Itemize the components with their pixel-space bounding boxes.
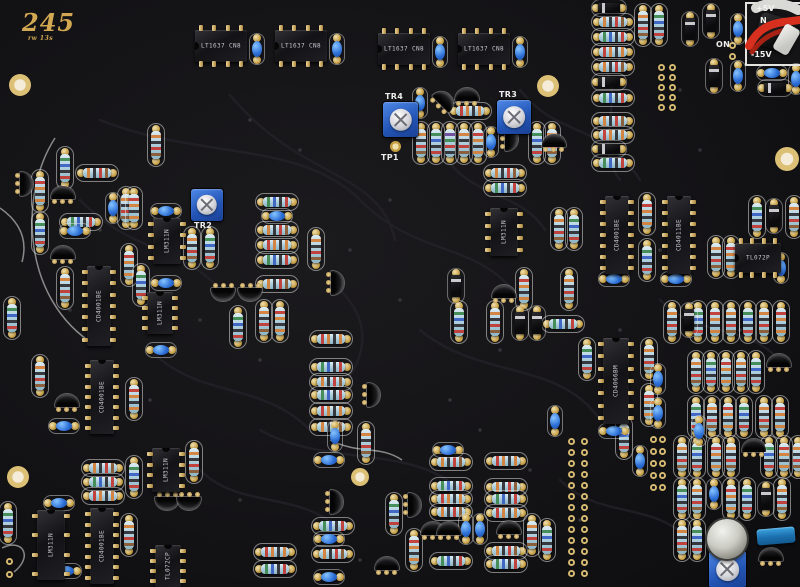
solder-pad [568,460,575,467]
resistor [674,478,690,520]
ic-pin [292,25,296,31]
resistor [739,478,755,520]
ic-marking: TL072P [746,255,770,262]
ic-pin [409,64,413,70]
solder-pad [658,94,665,101]
ceramic-capacitor [433,443,463,457]
resistor [32,355,48,397]
solder-pad [581,449,588,456]
transistor-to92 [454,86,480,106]
mounting-hole [9,74,31,96]
ceramic-capacitor [146,343,176,357]
ceramic-capacitor [692,416,706,446]
ic-pin [239,61,243,67]
ic-pin [517,248,523,252]
ic-pin [762,238,766,244]
ceramic-capacitor [314,453,344,467]
resistor [774,478,790,520]
ic-pin [147,473,153,477]
transistor-to92 [741,437,767,457]
ceramic-capacitor [633,446,647,476]
solder-pad [568,471,575,478]
transistor-to92 [362,382,382,408]
ic-pin [628,222,634,226]
ic-pin [32,514,38,518]
solder-pad [581,471,588,478]
resistor [126,187,142,229]
ic-pin [598,367,604,371]
ic-pin [110,270,116,274]
ic-pin [113,576,119,580]
test-point-pad [390,141,401,152]
ceramic-capacitor [314,570,344,584]
ic-pin [750,272,754,278]
ic-pin [212,25,216,31]
resistor [484,165,526,181]
resistor [57,267,73,309]
ic-tl072cp: TL072CP [150,545,186,587]
resistor [674,436,690,478]
solder-pad [568,493,575,500]
diode [592,74,626,90]
resistor [723,478,739,520]
ic-pin [422,64,426,70]
transistor-to92 [436,520,462,540]
solder-pad [568,559,575,566]
resistor [32,212,48,254]
mounting-hole [7,466,29,488]
ic-marking: LM311N [157,301,164,325]
ic-pin [662,244,668,248]
ic-pin [82,315,88,319]
ic-pin [199,61,203,67]
ic-pin [82,270,88,274]
solder-pad [568,482,575,489]
transistor-to92 [50,184,76,204]
ic-pin [598,416,604,420]
resistor [592,90,634,106]
ic-pin [85,555,91,559]
ic-marking: LT1637 CN8 [281,43,321,50]
transistor-to92 [176,492,202,512]
ic-pin [485,236,491,240]
resistor [148,124,164,166]
ic-pin [64,514,70,518]
ic-pin [306,25,310,31]
ic-pin [113,555,119,559]
ic-pin [489,28,493,34]
trimmer-tr3 [497,100,531,134]
ic-pin [690,222,696,226]
ceramic-capacitor [731,14,745,44]
ic-pin [517,212,523,216]
ic-cd4001be: CD4001BE [82,266,116,346]
ic-marking: CD4011BE [676,219,683,251]
ic-pin [148,256,154,260]
resistor [723,436,739,478]
ic-marking: CD4001BE [99,530,106,562]
resistor [542,316,584,332]
ic-pin [85,395,91,399]
solder-pad [659,460,666,467]
ic-pin [110,293,116,297]
ic-pin [662,200,668,204]
resistor [310,403,352,419]
diode [448,269,464,303]
ic-cd4011be: CD4011BE [662,196,696,274]
ic-pin [113,533,119,537]
ic-pin [600,266,606,270]
ic-pin [150,549,156,553]
ic-pin [422,28,426,34]
solder-pad [658,64,665,71]
solder-pad [568,537,575,544]
ceramic-capacitor [651,398,665,428]
ic-pin [179,452,185,456]
ic-pin [489,64,493,70]
trimmer-tr4 [383,102,418,137]
transistor-to92 [758,546,784,566]
ic-pin [690,255,696,259]
ic-pin [172,316,178,320]
resistor [635,4,651,46]
transistor-to92 [326,270,346,296]
ic-pin [462,28,466,34]
resistor [704,396,720,438]
ic-pin [319,25,323,31]
ic-lm311n: LM311N [148,218,186,264]
ic-pin [226,25,230,31]
resistor [184,227,200,269]
resistor [773,301,789,343]
resistor [272,300,288,342]
resistor [718,351,734,393]
resistor [736,396,752,438]
ic-marking: TL072CP [165,552,172,580]
silk-label-tr4: TR4 [385,92,403,101]
ic-pin [85,512,91,516]
ic-pin [82,338,88,342]
ic-pin [628,342,634,346]
ic-pin [82,293,88,297]
ic-pin [739,272,743,278]
ic-pin [113,426,119,430]
ic-pin [690,244,696,248]
resistor [254,544,296,560]
solder-pad [659,448,666,455]
ic-pin [690,211,696,215]
resistor [639,239,655,281]
ic-pin [485,212,491,216]
resistor [592,155,634,171]
resistor [310,387,352,403]
ceramic-capacitor [513,37,527,67]
solder-pad [650,484,657,491]
ic-pin [628,354,634,358]
resistor [76,165,118,181]
solder-pad [581,570,588,577]
ic-pin [628,391,634,395]
trimmer-dial [197,195,217,215]
ic-marking: LM311N [48,533,55,557]
ic-pin [85,385,91,389]
resistor [358,422,374,464]
solder-pad [669,84,676,91]
transistor-to92 [237,283,263,303]
resistor [256,300,272,342]
resistor [487,301,503,343]
film-capacitor [756,526,795,545]
ic-pin [600,233,606,237]
resistor [516,268,532,310]
solder-pad [568,449,575,456]
resistor [310,331,352,347]
ic-cd4001be: CD4001BE [85,508,119,584]
diode [592,141,626,157]
ic-pin [628,233,634,237]
resistor [740,301,756,343]
resistor [451,301,467,343]
ic-pin [150,579,156,583]
resistor [664,301,680,343]
resistor [4,297,20,339]
pcb-board: 245 rw 13s +5V N -15V ON TP1 LT1637 CN8L… [0,0,800,587]
resistor [386,493,402,535]
ic-marking: CD4001BE [614,219,621,251]
ic-pin [32,572,38,576]
resistor [674,519,690,561]
ic-pin [64,572,70,576]
ic-pin [462,64,466,70]
ic-pin [113,405,119,409]
ic-pin [517,236,523,240]
ic-pin [690,266,696,270]
transistor-to92 [491,283,517,303]
ic-lt1637-cn8: LT1637 CN8 [378,28,430,70]
ceramic-capacitor [250,34,264,64]
solder-pad [581,482,588,489]
resistor [485,556,527,572]
ic-pin [485,248,491,252]
ic-pin [212,61,216,67]
ic-pin [382,64,386,70]
ic-pin [110,327,116,331]
ceramic-capacitor [661,272,691,286]
ic-pin [628,200,634,204]
diode [512,306,528,340]
trimmer-dial [716,558,740,582]
ic-pin [690,233,696,237]
ic-pin [517,224,523,228]
diode [592,0,626,16]
ic-pin [180,569,186,573]
ic-pin [598,342,604,346]
diode [758,80,792,96]
ic-pin [598,379,604,383]
ceramic-capacitor [599,424,629,438]
silk-label-tr3: TR3 [499,90,517,99]
ic-pin [142,316,148,320]
resistor [312,546,354,562]
diode [758,482,774,516]
solder-pad [650,460,657,467]
solder-pad [568,515,575,522]
ic-pin [113,512,119,516]
resistor [579,338,595,380]
ic-pin [82,281,88,285]
ic-pin [113,395,119,399]
resistor [703,351,719,393]
solder-pad [669,104,676,111]
solder-pad [669,74,676,81]
transistor-to92 [54,392,80,412]
ic-pin [179,473,185,477]
board-revision-silkscreen: rw 13s [28,35,53,42]
resistor [539,519,555,561]
ic-pin [773,272,777,278]
resistor [720,396,736,438]
ic-pin [85,364,91,368]
ic-pin [179,484,185,488]
ic-marking: LT1637 CN8 [201,43,241,50]
ceramic-capacitor [314,532,344,546]
ic-pin [113,544,119,548]
ic-pin [762,272,766,278]
ic-pin [64,533,70,537]
ceramic-capacitor [651,364,665,394]
ic-pin [180,245,186,249]
solder-pad [658,84,665,91]
solder-pad [568,526,575,533]
ic-pin [475,64,479,70]
resistor [57,147,73,189]
ceramic-capacitor [106,193,120,223]
resistor [254,561,296,577]
diode [681,303,697,337]
ic-lm311n: LM311N [147,448,185,492]
diode [766,199,782,233]
ic-pin [180,559,186,563]
ic-pin [382,28,386,34]
ic-pin [64,553,70,557]
ic-pin [409,28,413,34]
ceramic-capacitor [151,204,181,218]
ic-pin [600,255,606,259]
ic-pin [199,25,203,31]
ic-pin [147,484,153,488]
ic-pin [662,266,668,270]
ic-pin [292,61,296,67]
transistor-to92 [541,132,567,152]
ceramic-capacitor [731,61,745,91]
ic-pin [172,326,178,330]
resistor [310,359,352,375]
resistor [126,456,142,498]
ic-pin [319,61,323,67]
solder-pad [581,493,588,500]
resistor [749,196,765,238]
solder-pad [659,484,666,491]
trimmer-dial [503,106,525,128]
ic-pin [739,238,743,244]
ceramic-capacitor [330,34,344,64]
solder-pad [581,515,588,522]
ic-pin [662,233,668,237]
resistor [756,396,772,438]
ic-pin [662,222,668,226]
ic-marking: LM311N [501,220,508,244]
transistor-to92 [50,244,76,264]
ic-pin [180,233,186,237]
ic-pin [150,559,156,563]
solder-pad [568,570,575,577]
ic-pin [85,426,91,430]
ic-lt1637-cn8: LT1637 CN8 [195,25,247,67]
transistor-to92 [496,519,522,539]
ic-marking: CD4001BE [96,290,103,322]
ic-pin [628,266,634,270]
solder-pad [650,472,657,479]
ic-pin [172,306,178,310]
power-label-plus5v: +5V [756,4,774,13]
ceramic-capacitor [473,514,487,544]
ic-pin [226,61,230,67]
resistor [0,502,16,544]
transistor-to92 [15,171,35,197]
solder-pad [581,537,588,544]
transistor-to92 [766,352,792,372]
ic-pin [150,569,156,573]
resistor [186,441,202,483]
resistor [708,436,724,478]
ceramic-capacitor [548,406,562,436]
ic-pin [628,211,634,215]
resistor [484,180,526,196]
ic-pin [306,61,310,67]
ic-pin [85,523,91,527]
board-number-silkscreen: 245 [22,8,75,37]
ceramic-capacitor [599,272,629,286]
resistor [689,519,705,561]
resistor [707,301,723,343]
ic-cd4001be: CD4001BE [600,196,634,274]
resistor [485,453,527,469]
ic-lm311n: LM311N [142,292,178,334]
solder-pad [568,548,575,555]
ic-pin [485,224,491,228]
ic-pin [142,296,148,300]
ic-pin [148,233,154,237]
ic-pin [628,255,634,259]
solder-pad [581,526,588,533]
ic-pin [395,64,399,70]
resistor [126,378,142,420]
resistor [723,301,739,343]
ic-pin [239,25,243,31]
diode [682,12,698,46]
ic-pin [600,211,606,215]
resistor [566,208,582,250]
ceramic-capacitor [757,66,787,80]
ic-pin [600,244,606,248]
ic-pin [628,379,634,383]
ic-pin [148,245,154,249]
ic-pin [502,28,506,34]
ic-tl072p: TL072P [735,238,781,278]
solder-pad [581,559,588,566]
transistor-to92 [403,492,423,518]
solder-pad [650,448,657,455]
